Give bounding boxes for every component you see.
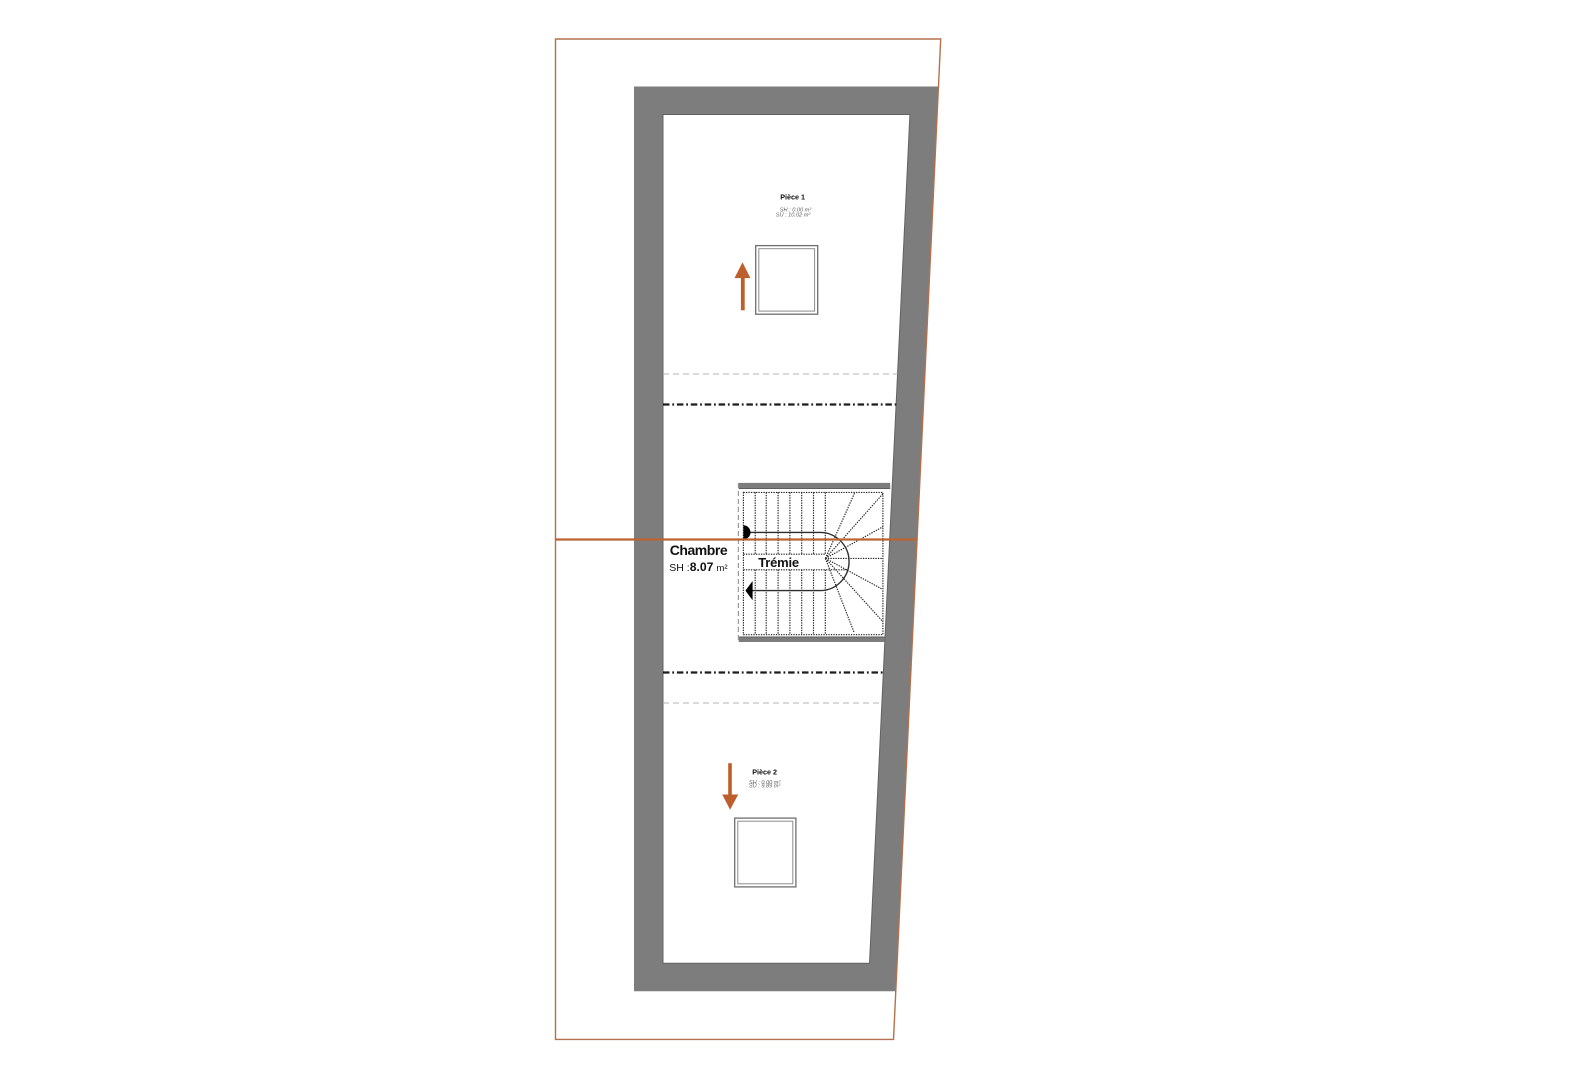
svg-text:Pièce 1: Pièce 1 <box>780 193 805 202</box>
svg-text:SU : 9.89 m²: SU : 9.89 m² <box>749 783 782 789</box>
svg-text:SH :8.07 m²: SH :8.07 m² <box>669 560 728 574</box>
svg-text:SU : 10.02 m²: SU : 10.02 m² <box>776 213 812 219</box>
svg-text:Trémie: Trémie <box>758 555 799 570</box>
svg-text:Pièce 2: Pièce 2 <box>752 767 777 776</box>
svg-text:Chambre: Chambre <box>670 542 728 558</box>
